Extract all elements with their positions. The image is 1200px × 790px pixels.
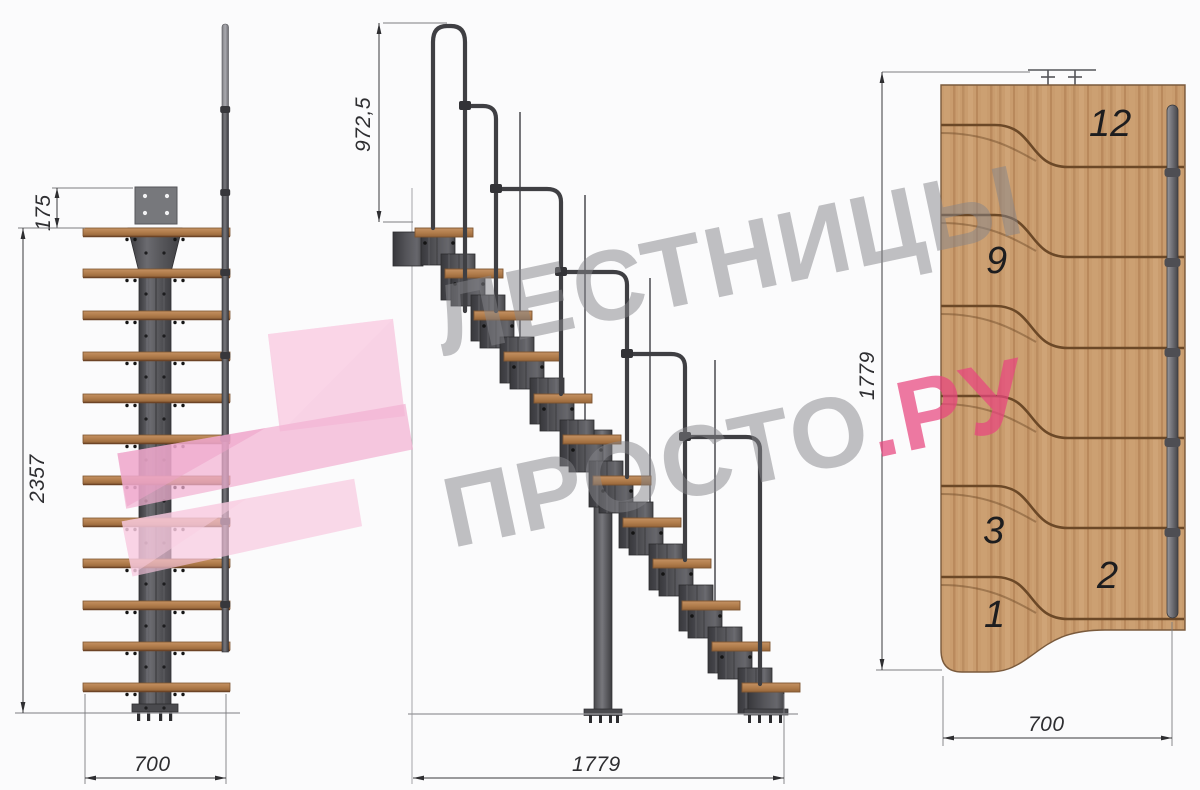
- drawing-canvas: 175 2357 700: [0, 0, 1200, 790]
- front-mount-plate: [135, 187, 177, 224]
- front-dim-plate-offset: 175: [32, 188, 133, 231]
- plan-wall-bracket: [1028, 70, 1096, 85]
- side-step-last: [742, 683, 800, 723]
- plan-handrail: [1165, 105, 1181, 618]
- tread-number-3: 3: [983, 510, 1004, 552]
- tread-number-2: 2: [1096, 555, 1118, 597]
- front-base-flange: [132, 704, 178, 712]
- dim-label-700-front: 700: [134, 753, 171, 776]
- staircase-drawing: 175 2357 700: [0, 0, 1200, 790]
- dim-label-1779-side: 1779: [572, 753, 621, 776]
- dim-label-972-5: 972,5: [352, 97, 375, 152]
- tread-number-12: 12: [1089, 103, 1131, 145]
- front-dim-total-height: 2357: [18, 228, 85, 713]
- dim-label-700-plan: 700: [1028, 713, 1065, 736]
- tread-number-1: 1: [984, 594, 1005, 636]
- watermark: ЛЕСТНИЦЫ ПРОСТО.РУ: [101, 143, 1038, 576]
- dim-label-175: 175: [32, 194, 55, 231]
- dim-label-2357: 2357: [26, 453, 49, 504]
- front-view: 175 2357 700: [15, 24, 240, 784]
- front-handrail-post: [220, 24, 230, 652]
